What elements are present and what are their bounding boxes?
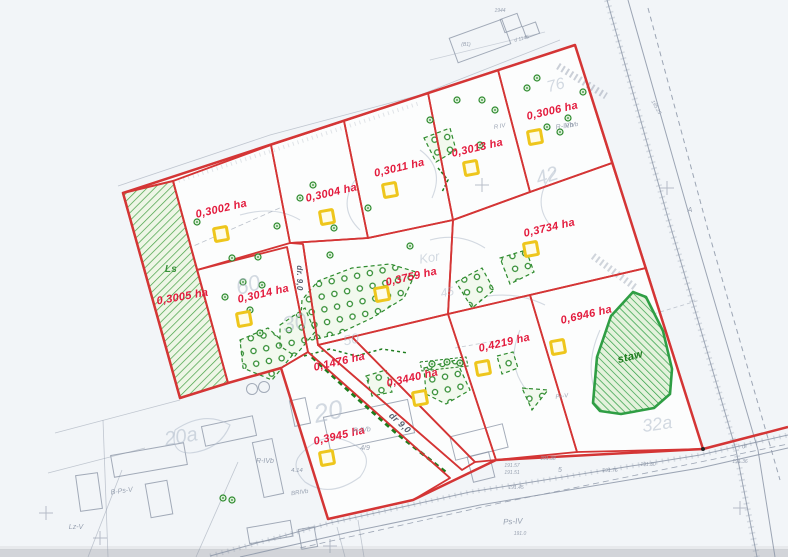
survey-annotation: 4.14: [291, 468, 303, 474]
area-marker-3014[interactable]: [236, 311, 251, 326]
survey-annotation: 191.45: [508, 485, 524, 491]
survey-annotation: 191.36: [732, 459, 748, 465]
cadastral-map-stage: 0,3002 ha0,3004 ha0,3011 ha0,3013 ha0,30…: [0, 0, 788, 557]
area-marker-4219[interactable]: [475, 360, 490, 375]
survey-annotation: 191.30: [640, 462, 656, 468]
survey-annotation: 4/9: [360, 445, 370, 452]
tree-icon: [479, 97, 485, 103]
tree-icon: [457, 360, 463, 366]
area-marker-3004[interactable]: [319, 209, 334, 224]
tree-icon: [492, 107, 498, 113]
tree-icon: [327, 252, 333, 258]
tree-icon: [229, 497, 235, 503]
area-marker-6946[interactable]: [550, 339, 565, 354]
tree-icon: [257, 330, 263, 336]
land-use-label-ls: Ls: [165, 264, 177, 275]
area-marker-3002[interactable]: [213, 226, 228, 241]
survey-annotation: 32a: [641, 412, 674, 436]
boundary-corner-dot: [701, 447, 705, 451]
tree-icon: [297, 195, 303, 201]
survey-annotation: R-IVb: [256, 458, 274, 465]
tree-icon: [365, 205, 371, 211]
survey-annotation: Ps-IV: [503, 516, 524, 526]
tree-icon: [524, 85, 530, 91]
survey-annotation: 191.57: [504, 463, 520, 469]
road-label-vertical: dr. 9,0: [295, 265, 304, 290]
area-marker-3011[interactable]: [382, 182, 397, 197]
tree-icon: [427, 117, 433, 123]
area-marker-3440[interactable]: [412, 390, 427, 405]
survey-annotation: 191.76: [602, 468, 618, 474]
tree-icon: [454, 97, 460, 103]
tree-icon: [534, 75, 540, 81]
tree-icon: [407, 243, 413, 249]
cadastral-map: 0,3002 ha0,3004 ha0,3011 ha0,3013 ha0,30…: [0, 0, 788, 557]
survey-annotation: Lz-V: [69, 524, 85, 531]
area-marker-3734[interactable]: [523, 241, 538, 256]
tree-icon: [331, 225, 337, 231]
area-marker-3006[interactable]: [527, 129, 542, 144]
tree-icon: [544, 124, 550, 130]
survey-annotation: A: [687, 207, 693, 214]
area-marker-3945[interactable]: [319, 450, 334, 465]
tree-icon: [274, 223, 280, 229]
survey-annotation: (B1): [461, 42, 471, 48]
tree-icon: [565, 115, 571, 121]
tree-icon: [444, 359, 450, 365]
tree-icon: [229, 255, 235, 261]
scan-shadow-band: [0, 549, 788, 557]
tree-icon: [580, 89, 586, 95]
tree-icon: [310, 182, 316, 188]
survey-annotation: 5: [558, 467, 562, 474]
survey-annotation: 191.0: [514, 531, 527, 537]
tree-icon: [255, 254, 261, 260]
survey-annotation: 191.51: [504, 470, 520, 476]
tree-icon: [220, 495, 226, 501]
survey-annotation: 191.38: [540, 456, 556, 462]
survey-annotation: 1944: [494, 8, 505, 14]
tree-icon: [222, 294, 228, 300]
area-marker-3013[interactable]: [463, 160, 478, 175]
